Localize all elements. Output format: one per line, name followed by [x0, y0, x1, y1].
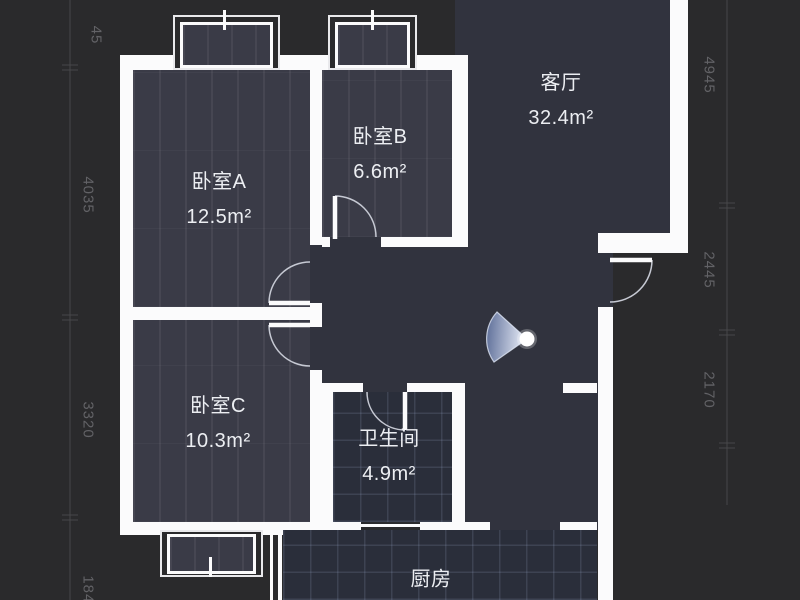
dimension-rail-right — [719, 0, 735, 505]
room-name: 卧室B — [353, 120, 408, 155]
plan-annotations — [0, 0, 800, 600]
room-name: 卫生间 — [358, 422, 420, 457]
door-leaf — [269, 196, 652, 430]
room-name: 厨房 — [411, 563, 452, 598]
window-tick — [211, 10, 373, 577]
dimension-label: 4945 — [701, 56, 718, 93]
room-label-bedroom-a: 卧室A 12.5m² — [186, 165, 251, 235]
room-area: 4.9m² — [358, 457, 420, 492]
room-area: 32.4m² — [528, 101, 593, 136]
door-arc — [269, 196, 652, 430]
dimension-label: 4035 — [80, 176, 97, 213]
floorplan-view: 客厅 32.4m² 卧室A 12.5m² 卧室B 6.6m² 卧室C 10.3m… — [0, 0, 800, 600]
dimension-label: 45 — [88, 26, 105, 45]
room-area: 6.6m² — [353, 155, 408, 190]
dimension-label: 1848 — [80, 575, 97, 600]
room-label-bathroom: 卫生间 4.9m² — [358, 422, 420, 492]
dimension-label: 3320 — [80, 401, 97, 438]
room-label-kitchen: 厨房 — [411, 563, 452, 598]
room-label-bedroom-c: 卧室C 10.3m² — [185, 389, 250, 459]
room-area: 12.5m² — [186, 200, 251, 235]
camera-view-cone-icon[interactable] — [487, 312, 537, 362]
room-label-bedroom-b: 卧室B 6.6m² — [353, 120, 408, 190]
room-label-living: 客厅 32.4m² — [528, 66, 593, 136]
room-name: 卧室C — [185, 389, 250, 424]
dimension-label: 2445 — [701, 251, 718, 288]
room-name: 客厅 — [528, 66, 593, 101]
dimension-label: 2170 — [701, 371, 718, 408]
dimension-rail-left — [62, 0, 78, 600]
room-name: 卧室A — [186, 165, 251, 200]
room-area: 10.3m² — [185, 424, 250, 459]
